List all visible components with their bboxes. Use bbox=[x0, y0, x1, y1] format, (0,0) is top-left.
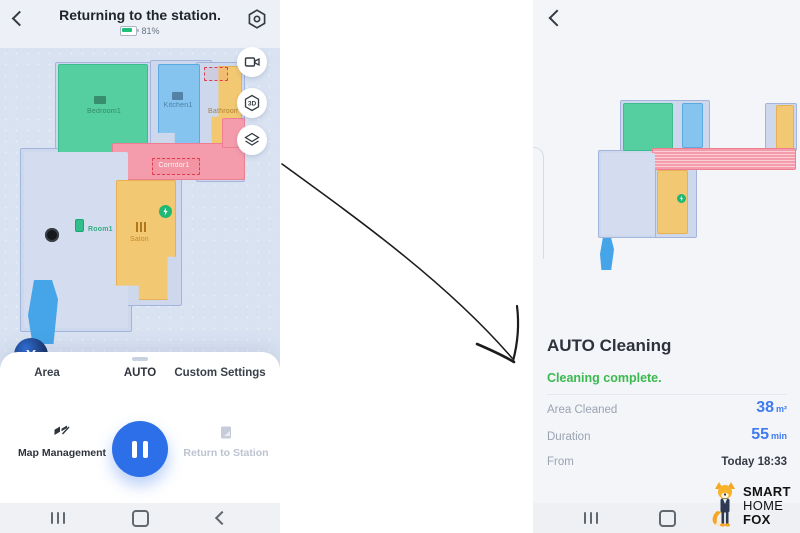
divider bbox=[547, 394, 787, 395]
pause-icon bbox=[132, 441, 137, 458]
composite-image: Returning to the station. 81% Bedroom1 bbox=[0, 0, 800, 533]
logo-line-1: SMART bbox=[743, 485, 791, 499]
sheet-drag-handle[interactable] bbox=[132, 357, 148, 361]
video-camera-icon bbox=[242, 52, 262, 72]
recents-nav-icon[interactable] bbox=[44, 503, 72, 533]
right-screen: AUTO Cleaning Cleaning complete. Area Cl… bbox=[533, 0, 800, 533]
cleaning-map-thumbnail bbox=[593, 96, 783, 281]
tab-custom-settings[interactable]: Custom Settings bbox=[168, 367, 272, 379]
room-label: Salon bbox=[130, 236, 164, 243]
battery-status: 81% bbox=[0, 26, 280, 36]
stat-value: 38m² bbox=[673, 399, 787, 417]
pause-button[interactable] bbox=[112, 421, 168, 477]
map-layers-button[interactable] bbox=[237, 125, 267, 155]
mini-room-kitchen bbox=[682, 103, 703, 148]
furniture-icon bbox=[172, 92, 183, 100]
mini-charging-dock-icon bbox=[677, 194, 686, 203]
settings-gear-icon[interactable] bbox=[246, 8, 268, 30]
logo-line-3: FOX bbox=[743, 513, 791, 527]
map-management-label: Map Management bbox=[12, 447, 112, 459]
back-icon[interactable] bbox=[14, 13, 25, 24]
return-to-station-button[interactable]: Return to Station bbox=[176, 424, 276, 459]
svg-text:3D: 3D bbox=[248, 101, 257, 108]
home-nav-icon[interactable] bbox=[653, 503, 681, 533]
room-label: Kitchen1 bbox=[158, 102, 198, 109]
battery-icon bbox=[120, 26, 137, 36]
tab-area[interactable]: Area bbox=[24, 367, 70, 379]
map-layers-icon bbox=[242, 130, 262, 150]
mini-room-room1 bbox=[601, 153, 655, 235]
left-screen: Returning to the station. 81% Bedroom1 bbox=[0, 0, 280, 533]
room-tag-icon bbox=[75, 219, 84, 232]
no-go-zone[interactable] bbox=[204, 67, 228, 81]
mini-room-corridor bbox=[652, 148, 796, 170]
room-label: Bathroom bbox=[208, 108, 238, 115]
smart-home-fox-logo: SMART HOME FOX bbox=[710, 479, 800, 533]
mini-room-bedroom bbox=[623, 103, 673, 151]
map-management-button[interactable]: Map Management bbox=[12, 422, 112, 459]
fox-mascot-icon bbox=[710, 481, 740, 531]
robot-icon bbox=[45, 228, 59, 242]
room-label: Bedroom1 bbox=[76, 108, 132, 115]
stat-value: 55min bbox=[673, 426, 787, 444]
return-to-station-label: Return to Station bbox=[176, 447, 276, 459]
home-nav-icon[interactable] bbox=[126, 503, 154, 533]
partial-card-edge bbox=[533, 147, 544, 259]
stat-value: Today 18:33 bbox=[673, 456, 787, 468]
page-title: Returning to the station. bbox=[40, 7, 240, 23]
furniture-icon bbox=[136, 222, 146, 232]
stat-label: Area Cleaned bbox=[547, 404, 617, 416]
room-label: Room1 bbox=[88, 226, 122, 233]
room-label: Corridor1 bbox=[148, 162, 200, 169]
back-nav-icon[interactable] bbox=[208, 503, 236, 533]
3d-view-icon: 3D bbox=[242, 93, 262, 113]
status-text: Cleaning complete. bbox=[547, 371, 662, 385]
room-unassigned-blue[interactable] bbox=[28, 280, 58, 344]
return-to-station-icon bbox=[217, 424, 235, 442]
mini-room-bathroom bbox=[776, 105, 794, 153]
map-management-icon bbox=[52, 422, 72, 442]
session-title: AUTO Cleaning bbox=[547, 336, 671, 356]
back-icon[interactable] bbox=[551, 12, 563, 24]
3d-view-button[interactable]: 3D bbox=[237, 88, 267, 118]
recents-nav-icon[interactable] bbox=[577, 503, 605, 533]
tab-auto[interactable]: AUTO bbox=[116, 367, 164, 379]
charging-dock-icon bbox=[159, 205, 172, 218]
stat-label: From bbox=[547, 456, 574, 468]
mini-room-blue bbox=[600, 238, 614, 270]
furniture-icon bbox=[94, 96, 106, 104]
logo-line-2: HOME bbox=[743, 499, 791, 513]
stat-label: Duration bbox=[547, 431, 590, 443]
video-camera-button[interactable] bbox=[237, 47, 267, 77]
battery-percent: 81% bbox=[141, 26, 159, 36]
